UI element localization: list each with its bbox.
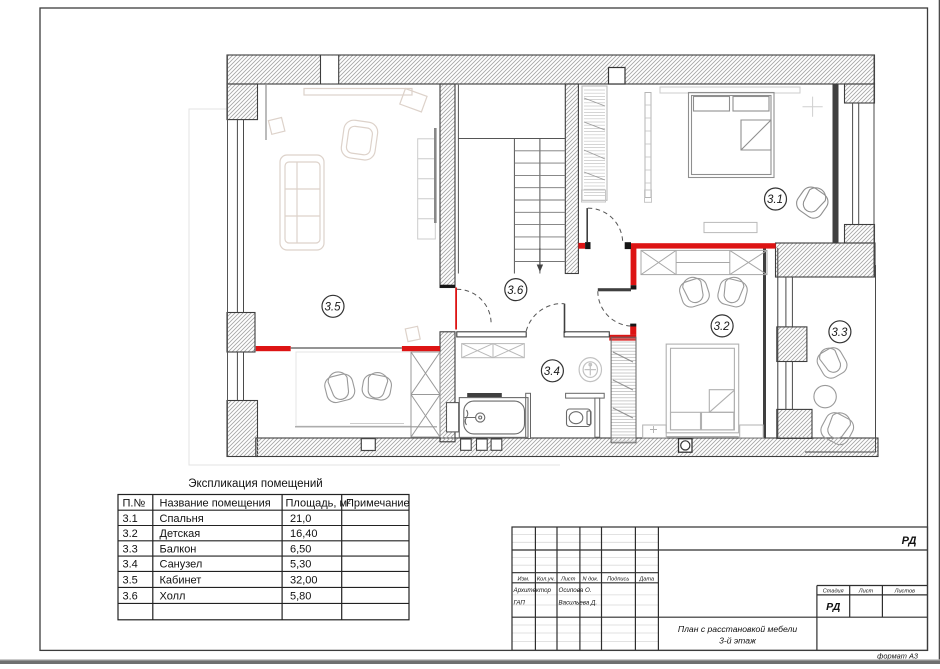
svg-text:N док.: N док. <box>583 576 599 582</box>
svg-text:Осипова О.: Осипова О. <box>559 587 592 594</box>
svg-text:16,40: 16,40 <box>290 528 318 540</box>
svg-text:Санузел: Санузел <box>160 559 203 571</box>
svg-text:Кол.уч.: Кол.уч. <box>537 576 555 582</box>
svg-text:3.1: 3.1 <box>767 194 783 206</box>
svg-text:Васильева Д.: Васильева Д. <box>559 599 598 606</box>
svg-text:Спальня: Спальня <box>160 513 204 525</box>
svg-text:Балкон: Балкон <box>160 543 197 555</box>
svg-text:ГАП: ГАП <box>514 599 526 606</box>
svg-text:Кабинет: Кабинет <box>160 574 202 586</box>
svg-text:Лист: Лист <box>858 589 874 595</box>
svg-text:Изм.: Изм. <box>518 576 530 582</box>
svg-text:3.5: 3.5 <box>325 302 342 314</box>
svg-text:Листов: Листов <box>894 589 915 595</box>
svg-text:Стадия: Стадия <box>823 589 844 595</box>
svg-text:3.5: 3.5 <box>123 574 138 586</box>
svg-text:Подпись: Подпись <box>607 576 629 582</box>
svg-text:Название помещения: Название помещения <box>160 498 271 510</box>
svg-text:Архитектор: Архитектор <box>513 587 552 594</box>
svg-text:3.6: 3.6 <box>123 590 138 602</box>
svg-text:3.1: 3.1 <box>123 513 138 525</box>
svg-text:3.6: 3.6 <box>507 285 524 297</box>
svg-text:3.3: 3.3 <box>831 327 848 339</box>
svg-text:Холл: Холл <box>160 590 186 602</box>
svg-text:РД: РД <box>902 535 917 547</box>
svg-text:6,50: 6,50 <box>290 543 311 555</box>
svg-text:РД: РД <box>826 601 841 613</box>
svg-text:32,00: 32,00 <box>290 574 318 586</box>
svg-text:Площадь, м²: Площадь, м² <box>286 498 352 510</box>
svg-text:3.2: 3.2 <box>123 528 138 540</box>
svg-text:3.4: 3.4 <box>123 559 138 571</box>
svg-text:П.№: П.№ <box>123 498 146 510</box>
svg-text:3.3: 3.3 <box>123 543 138 555</box>
svg-text:3.4: 3.4 <box>544 366 560 378</box>
svg-text:21,0: 21,0 <box>290 513 311 525</box>
svg-text:Лист: Лист <box>560 576 576 582</box>
svg-text:3-й этаж: 3-й этаж <box>719 636 757 646</box>
svg-text:3.2: 3.2 <box>714 321 731 333</box>
svg-text:Примечание: Примечание <box>346 498 410 510</box>
svg-text:Детская: Детская <box>160 528 201 540</box>
svg-text:Дата: Дата <box>638 576 654 582</box>
svg-text:5,80: 5,80 <box>290 590 311 602</box>
svg-text:5,30: 5,30 <box>290 559 311 571</box>
svg-text:Экспликация помещений: Экспликация помещений <box>188 478 323 490</box>
svg-text:План с расстановкой мебели: План с расстановкой мебели <box>678 624 797 634</box>
